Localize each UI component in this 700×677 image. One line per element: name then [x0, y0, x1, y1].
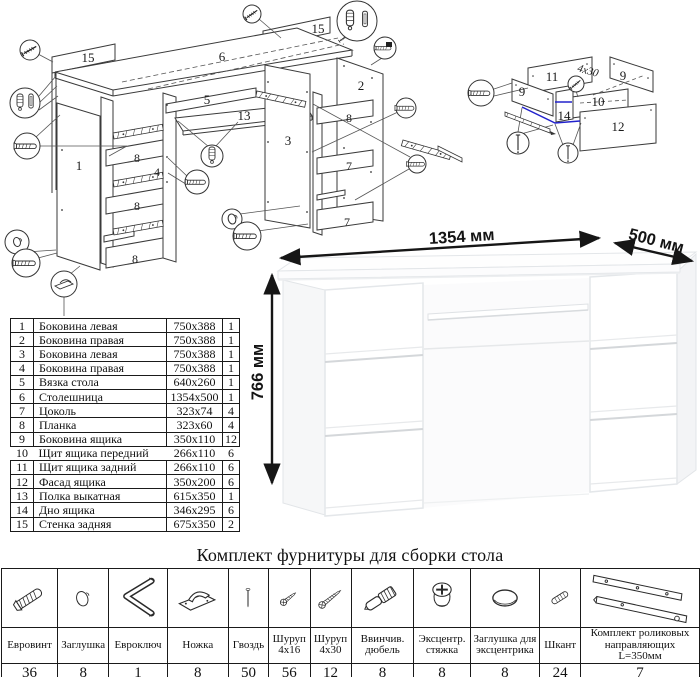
part-row: 14Дно ящика346x2956: [11, 503, 240, 517]
cap-icon: [58, 569, 109, 628]
part-qty: 12: [223, 432, 240, 446]
part-size: 1354x500: [167, 389, 223, 403]
part-qty: 6: [223, 475, 240, 489]
part-name: Вязка стола: [34, 375, 167, 389]
part-row: 1Боковина левая750x3881: [11, 319, 240, 333]
part-num: 11: [11, 460, 34, 474]
hardware-icons-row: [2, 569, 700, 628]
hardware-qty: 12: [310, 663, 351, 677]
hardware-name: Евроключ: [109, 628, 167, 664]
confirmat-screw-icon: [2, 569, 58, 628]
hardware-name: Комплект роликовых направляющих L=350мм: [581, 628, 700, 664]
part-label: 9: [519, 84, 526, 99]
wood-dowel-icon: [540, 569, 581, 628]
drawer-slide-icon: [505, 112, 550, 133]
hardware-qty: 7: [581, 663, 700, 677]
part-name: Щит ящика передний: [34, 446, 167, 460]
foot-icon: [167, 569, 228, 628]
part-row: 11Щит ящика задний266x1106: [11, 460, 240, 474]
part-name: Боковина левая: [34, 347, 167, 361]
part-qty: 6: [223, 503, 240, 517]
part-num: 5: [11, 375, 34, 389]
drawer-slide-icon: [438, 146, 462, 162]
part-qty: 4: [223, 418, 240, 432]
hardware-name: Евровинт: [2, 628, 58, 664]
hardware-name: Шкант: [540, 628, 581, 664]
confirmat-screw-icon: [469, 90, 490, 96]
part-row: 15Стенка задняя675x3502: [11, 517, 240, 531]
part-name: Щит ящика задний: [34, 460, 167, 474]
part-num: 1: [11, 319, 34, 333]
hardware-qty: 8: [351, 663, 414, 677]
hardware-qty: 1: [109, 663, 167, 677]
part-size: 346x295: [167, 503, 223, 517]
part-qty: 1: [223, 319, 240, 333]
part-num: 8: [11, 418, 34, 432]
part-size: 750x388: [167, 333, 223, 347]
part-name: Боковина правая: [34, 333, 167, 347]
part-name: Боковина ящика: [34, 432, 167, 446]
part-label: 9: [620, 68, 627, 83]
part-row: 12Фасад ящика350x2006: [11, 475, 240, 489]
parts-list-table: 1Боковина левая750x38812Боковина правая7…: [10, 318, 240, 532]
part-size: 323x60: [167, 418, 223, 432]
part-num: 6: [11, 389, 34, 403]
part-qty: 1: [223, 375, 240, 389]
hardware-names-row: ЕвровинтЗаглушкаЕвроключНожкаГвоздьШуруп…: [2, 628, 700, 664]
nail-icon: [228, 569, 268, 628]
part-label: 10: [592, 94, 605, 109]
hardware-qty: 8: [414, 663, 470, 677]
screw-short-icon: [269, 569, 311, 628]
hardware-name: Ножка: [167, 628, 228, 664]
hardware-qty: 50: [228, 663, 268, 677]
part-row: 2Боковина правая750x3881: [11, 333, 240, 347]
part-num: 2: [11, 333, 34, 347]
cam-cap-icon: [470, 569, 540, 628]
roller-guides-icon: [581, 569, 700, 628]
part-qty: 6: [223, 446, 240, 460]
hardware-qty: 36: [2, 663, 58, 677]
part-label: 14: [558, 108, 572, 123]
part-row: 9Боковина ящика350x11012: [11, 432, 240, 446]
hardware-name: Заглушка: [58, 628, 109, 664]
part-qty: 4: [223, 404, 240, 418]
part-num: 10: [11, 446, 34, 460]
hardware-quantities-row: 36818505612888247: [2, 663, 700, 677]
part-size: 350x200: [167, 475, 223, 489]
part-size: 266x110: [167, 460, 223, 474]
part-label: 12: [612, 119, 625, 134]
part-num: 14: [11, 503, 34, 517]
part-name: Полка выкатная: [34, 489, 167, 503]
part-num: 12: [11, 475, 34, 489]
part-qty: 1: [223, 333, 240, 347]
part-row: 3Боковина левая750x3881: [11, 347, 240, 361]
hardware-name: Ввинчив. дюбель: [351, 628, 414, 664]
hardware-qty: 24: [540, 663, 581, 677]
part-row: 10Щит ящика передний266x1106: [11, 446, 240, 460]
cam-lock-icon: [414, 569, 470, 628]
part-name: Столешница: [34, 389, 167, 403]
part-row: 8Планка323x604: [11, 418, 240, 432]
hardware-name: Шуруп 4x30: [310, 628, 351, 664]
part-size: 675x350: [167, 517, 223, 531]
hardware-qty: 8: [167, 663, 228, 677]
hardware-kit-table: ЕвровинтЗаглушкаЕвроключНожкаГвоздьШуруп…: [1, 568, 700, 677]
part-name: Фасад ящика: [34, 475, 167, 489]
hardware-kit-title: Комплект фурнитуры для сборки стола: [0, 545, 700, 566]
part-drawer-side: [610, 57, 653, 92]
part-num: 7: [11, 404, 34, 418]
part-size: 266x110: [167, 446, 223, 460]
hardware-qty: 8: [58, 663, 109, 677]
hardware-name: Шуруп 4x16: [269, 628, 311, 664]
part-qty: 1: [223, 361, 240, 375]
part-qty: 1: [223, 347, 240, 361]
part-row: 6Столешница1354x5001: [11, 389, 240, 403]
hardware-name: Эксцентр. стяжка: [414, 628, 470, 664]
part-qty: 6: [223, 460, 240, 474]
part-row: 7Цоколь323x744: [11, 404, 240, 418]
part-name: Боковина левая: [34, 319, 167, 333]
hex-key-icon: [109, 569, 167, 628]
part-size: 323x74: [167, 404, 223, 418]
part-qty: 1: [223, 489, 240, 503]
part-row: 5Вязка стола640x2601: [11, 375, 240, 389]
screw-long-icon: [310, 569, 351, 628]
part-num: 13: [11, 489, 34, 503]
part-size: 350x110: [167, 432, 223, 446]
part-name: Боковина правая: [34, 361, 167, 375]
part-qty: 1: [223, 389, 240, 403]
assembly-instruction-sheet: 1354 мм 500 мм 766 мм: [0, 0, 700, 677]
part-name: Дно ящика: [34, 503, 167, 517]
part-name: Стенка задняя: [34, 517, 167, 531]
part-num: 15: [11, 517, 34, 531]
part-size: 615x350: [167, 489, 223, 503]
part-num: 9: [11, 432, 34, 446]
part-row: 13Полка выкатная615x3501: [11, 489, 240, 503]
part-row: 4Боковина правая750x3881: [11, 361, 240, 375]
hardware-name: Заглушка для эксцентрика: [470, 628, 540, 664]
hardware-name: Гвоздь: [228, 628, 268, 664]
hardware-qty: 8: [470, 663, 540, 677]
part-size: 640x260: [167, 375, 223, 389]
part-qty: 2: [223, 517, 240, 531]
part-num: 3: [11, 347, 34, 361]
part-num: 4: [11, 361, 34, 375]
part-label: 11: [546, 69, 559, 84]
part-name: Цоколь: [34, 404, 167, 418]
part-size: 750x388: [167, 319, 223, 333]
hardware-qty: 56: [269, 663, 311, 677]
threaded-dowel-icon: [351, 569, 414, 628]
part-size: 750x388: [167, 347, 223, 361]
part-size: 750x388: [167, 361, 223, 375]
part-name: Планка: [34, 418, 167, 432]
